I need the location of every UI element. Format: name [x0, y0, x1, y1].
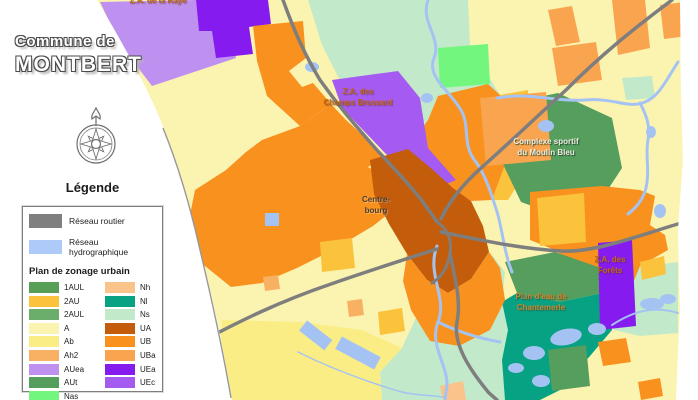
zone-uea-forets — [598, 240, 636, 330]
legend-swatch-nh — [105, 282, 135, 293]
lake — [532, 375, 550, 387]
map-label-za-des-forets: Z.A. des Forêts — [575, 255, 645, 277]
map-label-centre-bourg: Centre- bourg — [346, 195, 406, 217]
lake — [508, 363, 524, 373]
legend-swatch-uea — [105, 364, 135, 375]
legend-heading: Légende — [22, 180, 163, 195]
compass-rose-icon — [66, 102, 126, 172]
legend-label-2aul: 2AUL — [64, 310, 100, 319]
legend-row-hydro: Réseau hydrographique — [29, 237, 157, 257]
legend-swatch-uba — [105, 350, 135, 361]
legend-label-roads: Réseau routier — [69, 216, 125, 226]
legend-swatch-ah2 — [29, 350, 59, 361]
legend-swatch-ub — [105, 336, 135, 347]
legend-label-ua: UA — [140, 324, 157, 333]
map-label-complexe-sportif: Complexe sportif du Moulin Bleu — [495, 137, 597, 159]
legend-zoning-grid: 1AUL Nh 2AU Nl 2AUL Ns A UA Ab UB Ah2 UB… — [29, 282, 157, 400]
legend-swatch-uec — [105, 377, 135, 388]
legend-zoning-heading: Plan de zonage urbain — [29, 266, 157, 277]
legend-label-uba: UBa — [140, 351, 157, 360]
legend-label-a: A — [64, 324, 100, 333]
legend-label-ub: UB — [140, 337, 157, 346]
legend-label-nas: Nas — [64, 392, 100, 400]
map-label-za-des-champs-brossard: Z.A. des Champs Brossard — [306, 87, 410, 109]
legend-swatch-ua — [105, 323, 135, 334]
pond — [265, 213, 279, 226]
legend-label-uec: UEc — [140, 378, 157, 387]
map-title-line1: Commune de — [15, 33, 165, 50]
map-label-za-de-la-raye: Z.A. de la Raye — [110, 0, 206, 7]
lake — [523, 346, 545, 360]
map-title-line2: MONTBERT — [15, 53, 165, 77]
pond — [646, 126, 656, 138]
lake — [588, 323, 606, 335]
lake — [660, 294, 676, 304]
legend-row-roads: Réseau routier — [29, 214, 157, 228]
pond — [538, 120, 554, 132]
legend-swatch-aut — [29, 377, 59, 388]
pond — [421, 93, 433, 103]
map-title: Commune de MONTBERT — [15, 33, 165, 77]
legend-label-nh: Nh — [140, 283, 157, 292]
montbert-zoning-map-page: Z.A. de la Raye Z.A. des Champs Brossard… — [0, 0, 698, 400]
legend-swatch-ab — [29, 336, 59, 347]
legend-label-aut: AUt — [64, 378, 100, 387]
zone-ah2-small-1 — [263, 275, 280, 291]
zone-aut-south-blob — [548, 345, 590, 391]
pond — [654, 204, 666, 218]
zone-nas-northeast — [438, 44, 490, 88]
legend-swatch-2au — [29, 296, 59, 307]
legend-swatch-nas — [29, 391, 59, 400]
compass-hub — [92, 140, 101, 149]
legend-label-nl: Nl — [140, 297, 157, 306]
legend-swatch-hydro — [29, 240, 62, 254]
legend-swatch-roads — [29, 214, 62, 228]
legend-swatch-1aul — [29, 282, 59, 293]
legend-label-1aul: 1AUL — [64, 283, 100, 292]
legend-swatch-nl — [105, 296, 135, 307]
legend-label-ns: Ns — [140, 310, 157, 319]
map-label-plan-deau: Plan d'eau de Chantemerle — [492, 292, 590, 314]
zone-2au-west-1 — [320, 238, 355, 272]
legend-label-ab: Ab — [64, 337, 100, 346]
legend-label-uea: UEa — [140, 365, 157, 374]
legend-swatch-a — [29, 323, 59, 334]
legend-label-auea: AUea — [64, 365, 100, 374]
zone-2au-east-1 — [537, 193, 586, 246]
legend-label-ah2: Ah2 — [64, 351, 100, 360]
zone-ub-small-se — [598, 338, 631, 366]
zone-uba-patch-3 — [612, 0, 650, 55]
legend-label-hydro: Réseau hydrographique — [69, 237, 157, 257]
legend-label-2au: 2AU — [64, 297, 100, 306]
zone-2au-west-2 — [378, 308, 405, 335]
zone-ah2-small-2 — [347, 299, 364, 317]
legend-swatch-auea — [29, 364, 59, 375]
legend-swatch-2aul — [29, 309, 59, 320]
legend-box: Réseau routier Réseau hydrographique Pla… — [22, 206, 163, 392]
zone-ns-small-northeast — [622, 76, 655, 100]
legend-swatch-ns — [105, 309, 135, 320]
